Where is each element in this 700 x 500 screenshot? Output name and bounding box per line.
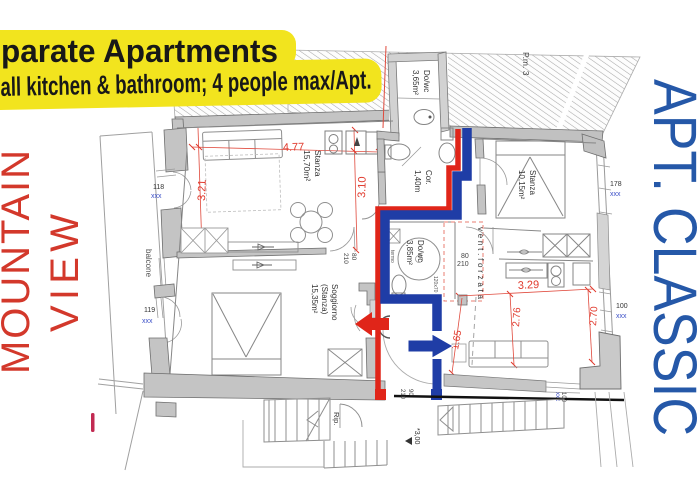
svg-text:100: 100 — [616, 303, 628, 310]
svg-text:Cor.: Cor. — [424, 170, 433, 185]
svg-text:Stanza: Stanza — [313, 150, 323, 177]
svg-text:210: 210 — [399, 389, 405, 400]
svg-text:178: 178 — [610, 181, 622, 188]
svg-text:210: 210 — [457, 261, 469, 268]
svg-text:15,70m²: 15,70m² — [302, 150, 312, 181]
svg-text:P.m. 3: P.m. 3 — [521, 52, 531, 76]
svg-text:2 Separate Apartments: 2 Separate Apartments — [0, 33, 278, 69]
svg-text:120x70: 120x70 — [432, 276, 438, 293]
svg-text:*3,00: *3,00 — [413, 428, 420, 444]
svg-text:vent.forzata: vent.forzata — [476, 227, 485, 300]
svg-text:xxx: xxx — [151, 193, 162, 200]
svg-text:VIEW: VIEW — [43, 214, 87, 332]
svg-text:3.29: 3.29 — [518, 279, 540, 292]
svg-text:3.10: 3.10 — [356, 176, 369, 198]
svg-text:xxx: xxx — [616, 313, 627, 320]
svg-text:15,35m²: 15,35m² — [310, 284, 319, 314]
svg-text:80: 80 — [350, 253, 357, 261]
svg-text:(Stanza): (Stanza) — [320, 284, 329, 315]
svg-text:210: 210 — [342, 253, 349, 264]
svg-text:118: 118 — [153, 184, 164, 191]
svg-text:Stanza: Stanza — [528, 170, 537, 195]
svg-text:Do/wc: Do/wc — [422, 70, 431, 92]
svg-text:2.70: 2.70 — [588, 306, 600, 327]
svg-text:3.21: 3.21 — [196, 179, 209, 201]
svg-text:balcone: balcone — [144, 249, 153, 278]
svg-text:xxx: xxx — [610, 191, 621, 198]
svg-text:termo: termo — [389, 250, 395, 263]
svg-text:xxx: xxx — [142, 318, 153, 325]
svg-text:Do/wc: Do/wc — [416, 240, 425, 262]
svg-text:APT. CLASSIC: APT. CLASSIC — [641, 79, 700, 436]
svg-text:Rip.: Rip. — [332, 412, 341, 425]
svg-text:119: 119 — [144, 307, 155, 314]
svg-text:4.77: 4.77 — [283, 141, 305, 154]
svg-text:2.76: 2.76 — [511, 307, 523, 328]
svg-text:3,65m²: 3,65m² — [411, 70, 420, 95]
svg-text:10,15m²: 10,15m² — [517, 170, 526, 200]
svg-text:Soggiorno: Soggiorno — [330, 284, 339, 321]
svg-text:90: 90 — [407, 389, 413, 396]
svg-text:3,85m²: 3,85m² — [405, 240, 414, 265]
svg-text:1,40m: 1,40m — [413, 170, 422, 193]
svg-text:80: 80 — [461, 253, 469, 260]
